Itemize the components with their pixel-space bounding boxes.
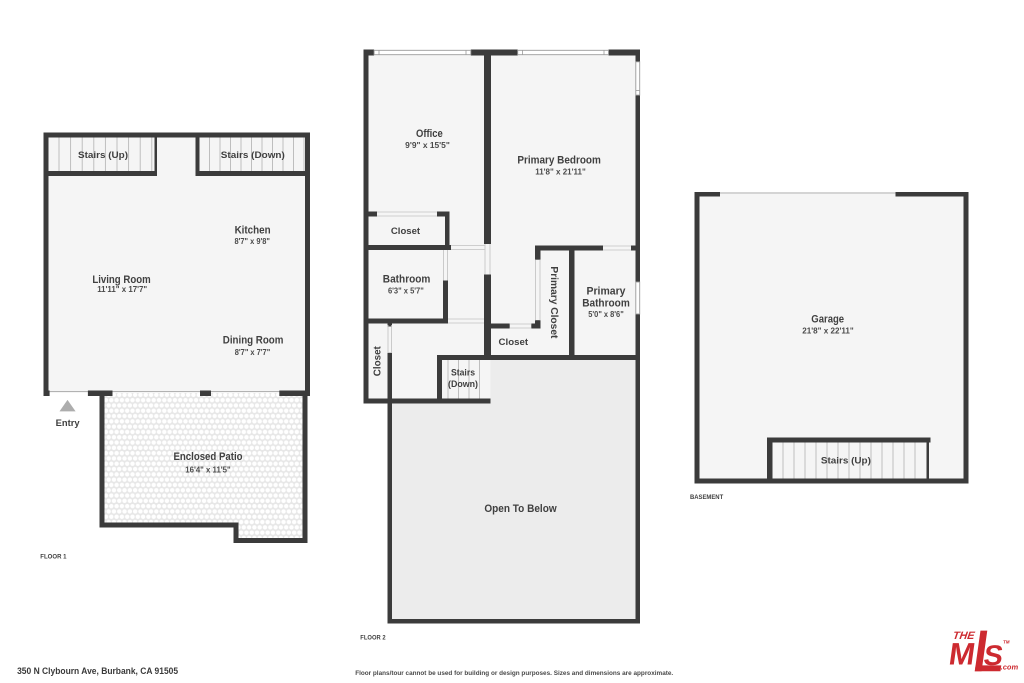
svg-text:Open To Below: Open To Below [484, 503, 557, 515]
svg-text:Dining Room: Dining Room [223, 335, 284, 347]
svg-text:BASEMENT: BASEMENT [690, 494, 723, 501]
svg-text:9'9" x 15'5": 9'9" x 15'5" [405, 141, 450, 150]
svg-text:8'7" x 9'8": 8'7" x 9'8" [234, 237, 270, 246]
svg-text:Enclosed Patio: Enclosed Patio [174, 451, 243, 463]
svg-text:Primary Closet: Primary Closet [548, 266, 559, 339]
svg-text:(Down): (Down) [448, 379, 478, 390]
svg-text:Stairs (Up): Stairs (Up) [821, 455, 871, 466]
svg-text:11'8" x 21'11": 11'8" x 21'11" [535, 167, 586, 176]
svg-text:Stairs: Stairs [451, 367, 475, 378]
svg-text:6'3" x 5'7": 6'3" x 5'7" [388, 287, 424, 296]
svg-text:TM: TM [1003, 639, 1010, 644]
svg-text:Kitchen: Kitchen [235, 224, 271, 236]
svg-text:Office: Office [416, 128, 443, 140]
svg-text:Garage: Garage [811, 313, 844, 325]
svg-text:FLOOR 2: FLOOR 2 [360, 634, 386, 641]
svg-text:Closet: Closet [499, 337, 529, 348]
svg-text:Bathroom: Bathroom [582, 297, 630, 309]
svg-text:21'8" x 22'11": 21'8" x 22'11" [802, 327, 854, 336]
svg-text:M: M [947, 637, 978, 672]
svg-text:11'11" x 17'7": 11'11" x 17'7" [97, 285, 147, 294]
svg-text:Primary Bedroom: Primary Bedroom [517, 154, 601, 166]
svg-text:.com: .com [1000, 663, 1019, 672]
svg-text:Closet: Closet [391, 226, 421, 237]
svg-text:350 N Clybourn Ave, Burbank, C: 350 N Clybourn Ave, Burbank, CA 91505 [17, 666, 179, 677]
svg-text:Entry: Entry [56, 418, 81, 429]
svg-text:FLOOR 1: FLOOR 1 [40, 554, 67, 561]
svg-text:Closet: Closet [372, 346, 383, 377]
svg-text:Bathroom: Bathroom [383, 273, 431, 285]
svg-text:Primary: Primary [587, 285, 627, 297]
svg-text:16'4" x 11'5": 16'4" x 11'5" [185, 465, 231, 474]
svg-text:8'7" x 7'7": 8'7" x 7'7" [235, 348, 271, 357]
svg-text:Floor plans/tour cannot be use: Floor plans/tour cannot be used for buil… [355, 670, 673, 677]
svg-text:Stairs (Down): Stairs (Down) [221, 150, 285, 161]
svg-text:Stairs (Up): Stairs (Up) [78, 150, 128, 161]
svg-text:5'0" x 8'6": 5'0" x 8'6" [588, 310, 624, 319]
